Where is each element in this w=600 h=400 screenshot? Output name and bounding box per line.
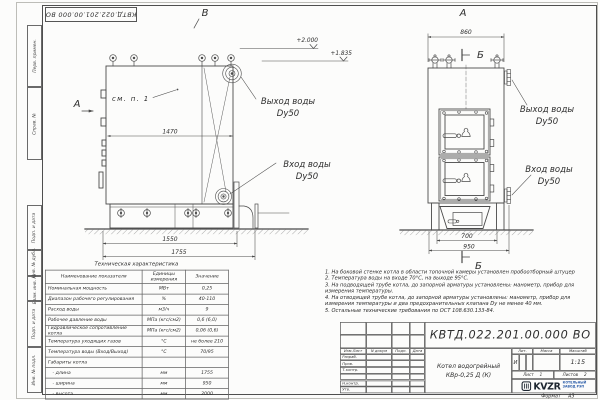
- tech-cell: мм: [142, 389, 186, 400]
- tech-cell: мм: [142, 378, 186, 389]
- tech-characteristics: Техническая характеристика Наименование …: [45, 260, 235, 395]
- tech-cell: - ширина: [45, 378, 142, 389]
- side-view-drawing: [82, 19, 348, 234]
- note-4: 4. На отводящей трубе котла, до запорной…: [325, 294, 593, 307]
- tech-cell: мм: [142, 368, 186, 379]
- tech-cell: 40-110: [186, 294, 229, 305]
- tb-row-utv: Утв.: [340, 387, 366, 393]
- product-name: Котел водогрейный КВр-0,25 Д (К): [425, 348, 512, 393]
- outlet-label-right: Выход воды: [520, 105, 574, 115]
- tech-cell: 0,06 (0,6): [186, 326, 229, 337]
- ground-line-left: [85, 229, 308, 234]
- view-b-label: В: [202, 8, 209, 19]
- product-name-line1: Котел водогрейный: [437, 362, 500, 371]
- tech-cell: Расход воды: [45, 305, 142, 316]
- tech-cell: [142, 357, 186, 368]
- outlet-flange-front: [505, 70, 511, 86]
- tech-cell: м3/ч: [142, 305, 186, 316]
- dim-1470: 1470: [162, 129, 177, 136]
- door-latch: [462, 173, 470, 181]
- sheets-label: Листов: [563, 373, 578, 378]
- tech-header-name: Наименование показателя: [45, 270, 142, 284]
- tech-cell: 0,25: [186, 284, 229, 295]
- tech-cell: Габариты котла: [45, 357, 142, 368]
- title-block: КВТД.022.201.00.000 ВО Изм.Лист N докум …: [340, 322, 596, 393]
- tech-cell: МПа (кгс/см2): [142, 315, 186, 326]
- tech-cell: [186, 357, 229, 368]
- base-frame: [110, 204, 233, 228]
- manufacturer-logo: KVZR КОТЕЛЬНЫЙ ЗАВОД РЭП: [512, 379, 596, 393]
- title-block-doc-number: КВТД.022.201.00.000 ВО: [425, 322, 596, 348]
- tech-table: Наименование показателя Единицы измерени…: [45, 270, 229, 400]
- note-5: 5. Остальные технические требования по О…: [325, 307, 593, 313]
- format-label: Формат: [541, 393, 560, 399]
- outlet-dn-right: Dy50: [536, 117, 558, 127]
- section-mark-top: [462, 50, 470, 61]
- upper-door: [439, 109, 494, 155]
- tech-cell: Рабочее давление воды: [45, 315, 142, 326]
- tech-cell: Температура воды (Вход/Выход): [45, 347, 142, 358]
- tech-cell: Номинальная мощность: [45, 284, 142, 295]
- tb-sheets: Листов 2: [554, 371, 596, 379]
- inlet-flange-side: [216, 189, 232, 205]
- tb-lit-value: И: [512, 354, 519, 371]
- product-name-line2: КВр-0,25 Д (К): [446, 371, 491, 380]
- outlet-flange-side: [223, 64, 242, 83]
- sheets-value: 2: [584, 373, 587, 378]
- tech-cell: Диапазон рабочего регулирования: [45, 294, 142, 305]
- tech-cell: °С: [142, 336, 186, 347]
- inlet-flange-front: [505, 188, 511, 204]
- tech-cell: Температура уходящих газов: [45, 336, 142, 347]
- tech-cell: 950: [186, 378, 229, 389]
- kvzr-logo-text: KVZR: [533, 380, 560, 391]
- sheet-value: 1: [540, 373, 543, 378]
- tech-cell: %: [142, 294, 186, 305]
- kvzr-logo-subtitle: КОТЕЛЬНЫЙ ЗАВОД РЭП: [563, 382, 587, 389]
- tech-cell: 70/95: [186, 347, 229, 358]
- inlet-dn-right: Dy50: [538, 177, 560, 187]
- note-3: 3. На подводящей трубе котла, до запорно…: [325, 282, 593, 295]
- outlet-label-left: Выход воды: [261, 97, 315, 107]
- section-b-label-top: Б: [477, 50, 484, 61]
- technical-notes: 1. На боковой стенке котла в области топ…: [325, 269, 595, 321]
- tech-cell: 1755: [186, 368, 229, 379]
- tech-cell: - длина: [45, 368, 142, 379]
- dim-700: 700: [461, 233, 473, 240]
- tech-cell: МПа (кгс/см2): [142, 326, 186, 337]
- tb-row-tkontr: Т.контр.: [340, 367, 366, 374]
- logo-sub-line2: ЗАВОД РЭП: [563, 386, 587, 390]
- tech-table-title: Техническая характеристика: [95, 260, 230, 267]
- tech-cell: 9: [186, 305, 229, 316]
- tech-cell: не более 210: [186, 336, 229, 347]
- view-a-direction-label: А: [73, 99, 81, 110]
- door-latch: [462, 128, 470, 136]
- dim-1755: 1755: [171, 249, 186, 256]
- elevation-top: +2.000: [297, 38, 319, 44]
- leader-lines-left: [153, 77, 276, 194]
- sheet-label: Лист: [523, 373, 533, 378]
- dimension-lines: [103, 34, 509, 261]
- flue-elbow: [234, 182, 289, 228]
- legs-and-hopper: [432, 203, 505, 230]
- outlet-dn-left: Dy50: [277, 109, 299, 119]
- tech-cell: - высота: [45, 389, 142, 400]
- elevation-mid: +1.835: [331, 51, 353, 57]
- tb-mass-value: [533, 354, 560, 371]
- top-bolts: [110, 55, 235, 66]
- tech-header-units: Единицы измерения: [142, 270, 186, 284]
- dim-860: 860: [460, 29, 472, 36]
- tb-sheet: Лист 1: [512, 371, 554, 379]
- format-note: Формат А3: [520, 393, 596, 400]
- inlet-label-right: Вход воды: [525, 165, 573, 175]
- tech-cell: °С: [142, 347, 186, 358]
- tb-scale-value: 1:15: [560, 354, 596, 371]
- view-b-tick: [194, 19, 199, 28]
- kvzr-logo-icon: [521, 381, 531, 391]
- tech-cell: 2000: [186, 389, 229, 400]
- lower-door: [439, 157, 494, 201]
- inlet-dn-left: Dy50: [296, 172, 318, 182]
- tech-header-value: Значение: [186, 270, 229, 284]
- leader-lines-right: [512, 80, 531, 195]
- view-a-label: А: [459, 8, 467, 19]
- dim-1550: 1550: [162, 236, 177, 243]
- format-value: А3: [568, 393, 574, 399]
- front-view-drawing: [400, 50, 533, 263]
- drawing-sheet: Перв. примен. Справ. № Подп. и дата Инв.…: [0, 0, 600, 400]
- see-note-label: см. п. 1: [112, 95, 149, 103]
- section-mark-bottom: [462, 252, 470, 263]
- tech-cell: 0,6 (6,0): [186, 315, 229, 326]
- tb-row-empty: [340, 374, 366, 381]
- tech-cell: Гидравлическое сопротивление котла: [45, 326, 142, 337]
- tech-cell: МВт: [142, 284, 186, 295]
- dim-950: 950: [463, 244, 475, 251]
- inlet-label-left: Вход воды: [283, 160, 331, 170]
